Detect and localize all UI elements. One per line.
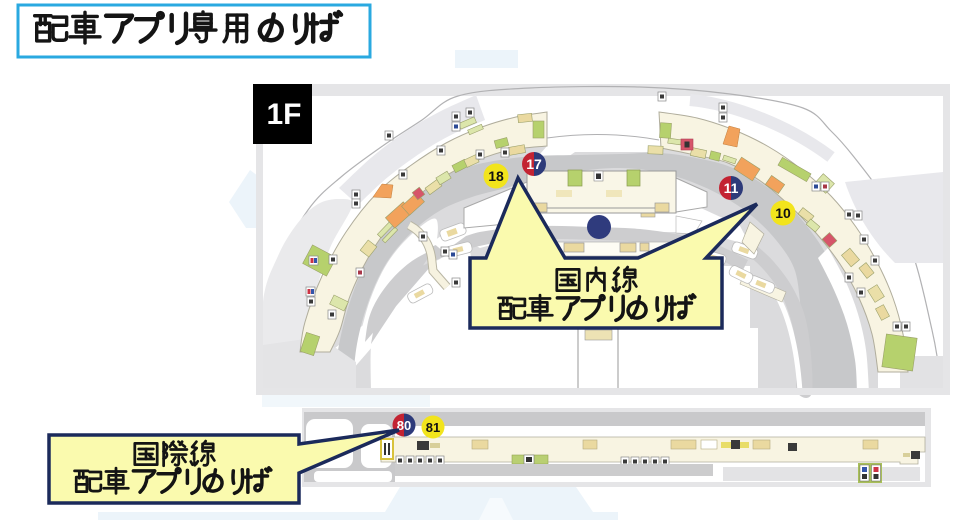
svg-text:81: 81: [426, 420, 440, 435]
svg-text:18: 18: [488, 168, 504, 184]
svg-text:11: 11: [724, 180, 739, 196]
svg-text:1F: 1F: [266, 98, 301, 131]
svg-text:10: 10: [775, 205, 791, 221]
svg-text:17: 17: [526, 156, 542, 172]
